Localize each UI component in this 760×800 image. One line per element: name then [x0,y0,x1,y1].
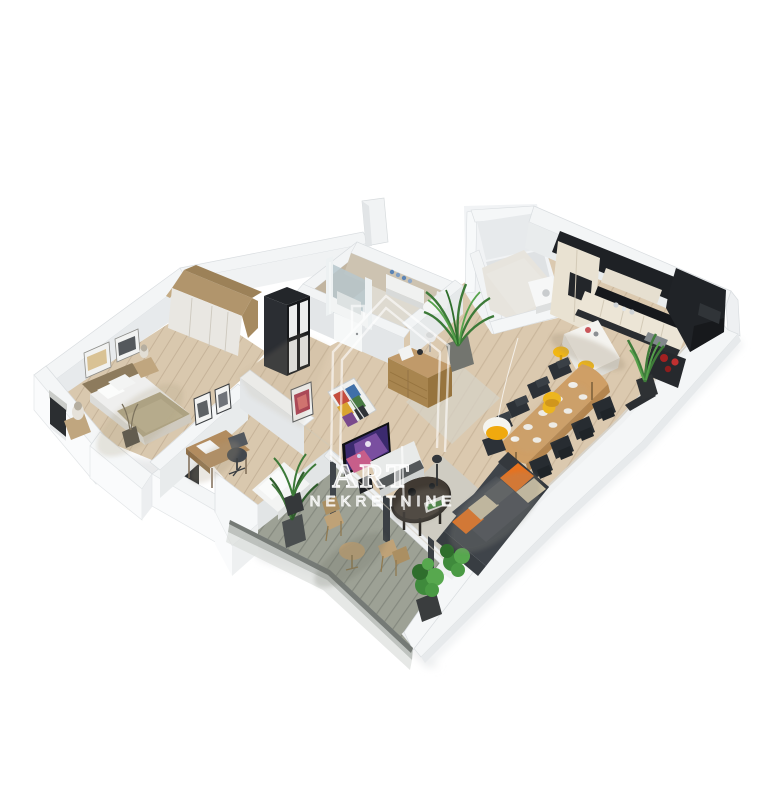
svg-text:ART: ART [332,458,412,495]
svg-text:NEKRETNINE: NEKRETNINE [310,493,457,510]
